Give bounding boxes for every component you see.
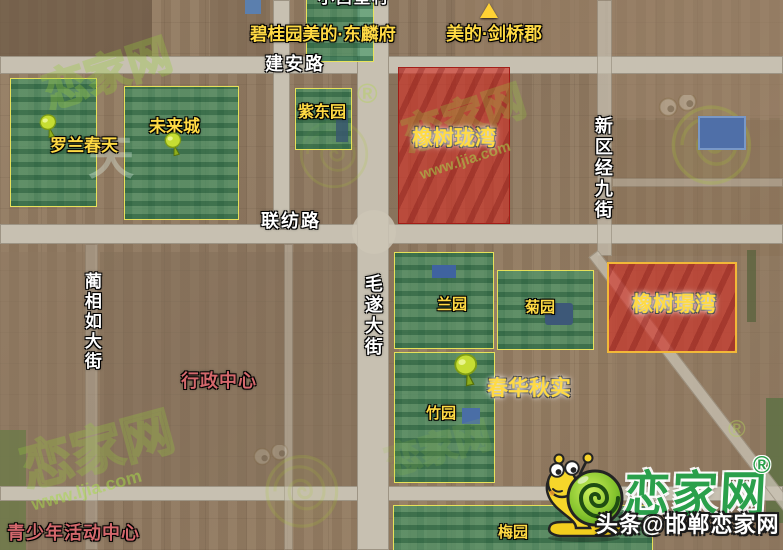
blue-roof-building <box>432 265 456 278</box>
project-label-chunhuaqiushi: 春华秋实 <box>487 378 571 400</box>
road-label-jianan: 建安路 <box>265 55 325 74</box>
road-east-h <box>612 178 783 187</box>
village-label: 小西堡村 <box>318 0 390 8</box>
green-area-label-zidongyuan: 紫东园 <box>298 105 346 122</box>
road-label-lianfang: 联纺路 <box>261 212 321 231</box>
road-jianan <box>0 56 783 74</box>
red-area-label-longwan: 橡树珑湾 <box>412 128 496 150</box>
road-label-maosui: 毛遂大街 <box>363 274 382 358</box>
triangle-marker-icon <box>480 3 498 18</box>
project-label-jianqiaojun: 美的·剑桥郡 <box>446 25 542 44</box>
road-mid-lower <box>284 244 293 550</box>
field-patch <box>100 252 358 486</box>
poi-label-youth-center: 青少年活动中心 <box>7 524 140 543</box>
blue-roof-building <box>462 408 480 424</box>
blue-roof-building <box>698 116 746 150</box>
green-area-label-meiyuan: 梅园 <box>498 525 528 541</box>
green-area-label-lanyuan: 兰园 <box>437 297 467 313</box>
field-patch <box>0 0 152 58</box>
satellite-map: 恋家网 恋家网 www.ljia.com 恋家网 www.ljia.com 恋家… <box>0 0 783 550</box>
road-label-jingjiu: 新区经九街 <box>593 116 612 221</box>
blue-roof-building <box>245 0 261 14</box>
red-area-label-jingwan: 橡树璟湾 <box>632 294 716 316</box>
poi-label-admin-center: 行政中心 <box>181 372 257 391</box>
road-label-linxiangru: 蔺相如大街 <box>82 272 100 372</box>
project-label-donglinfu: 碧桂园美的·东麟府 <box>250 25 396 43</box>
tree-row <box>747 250 756 322</box>
green-area-label-luolan: 罗兰春天 <box>50 137 118 155</box>
green-area-label-juyuan: 菊园 <box>525 300 555 316</box>
credit-text: 头条@邯郸恋家网 <box>596 507 779 539</box>
registered-mark: ® <box>753 452 771 480</box>
green-area-label-zhuyuan: 竹园 <box>426 406 456 422</box>
road-intersection <box>352 210 396 254</box>
